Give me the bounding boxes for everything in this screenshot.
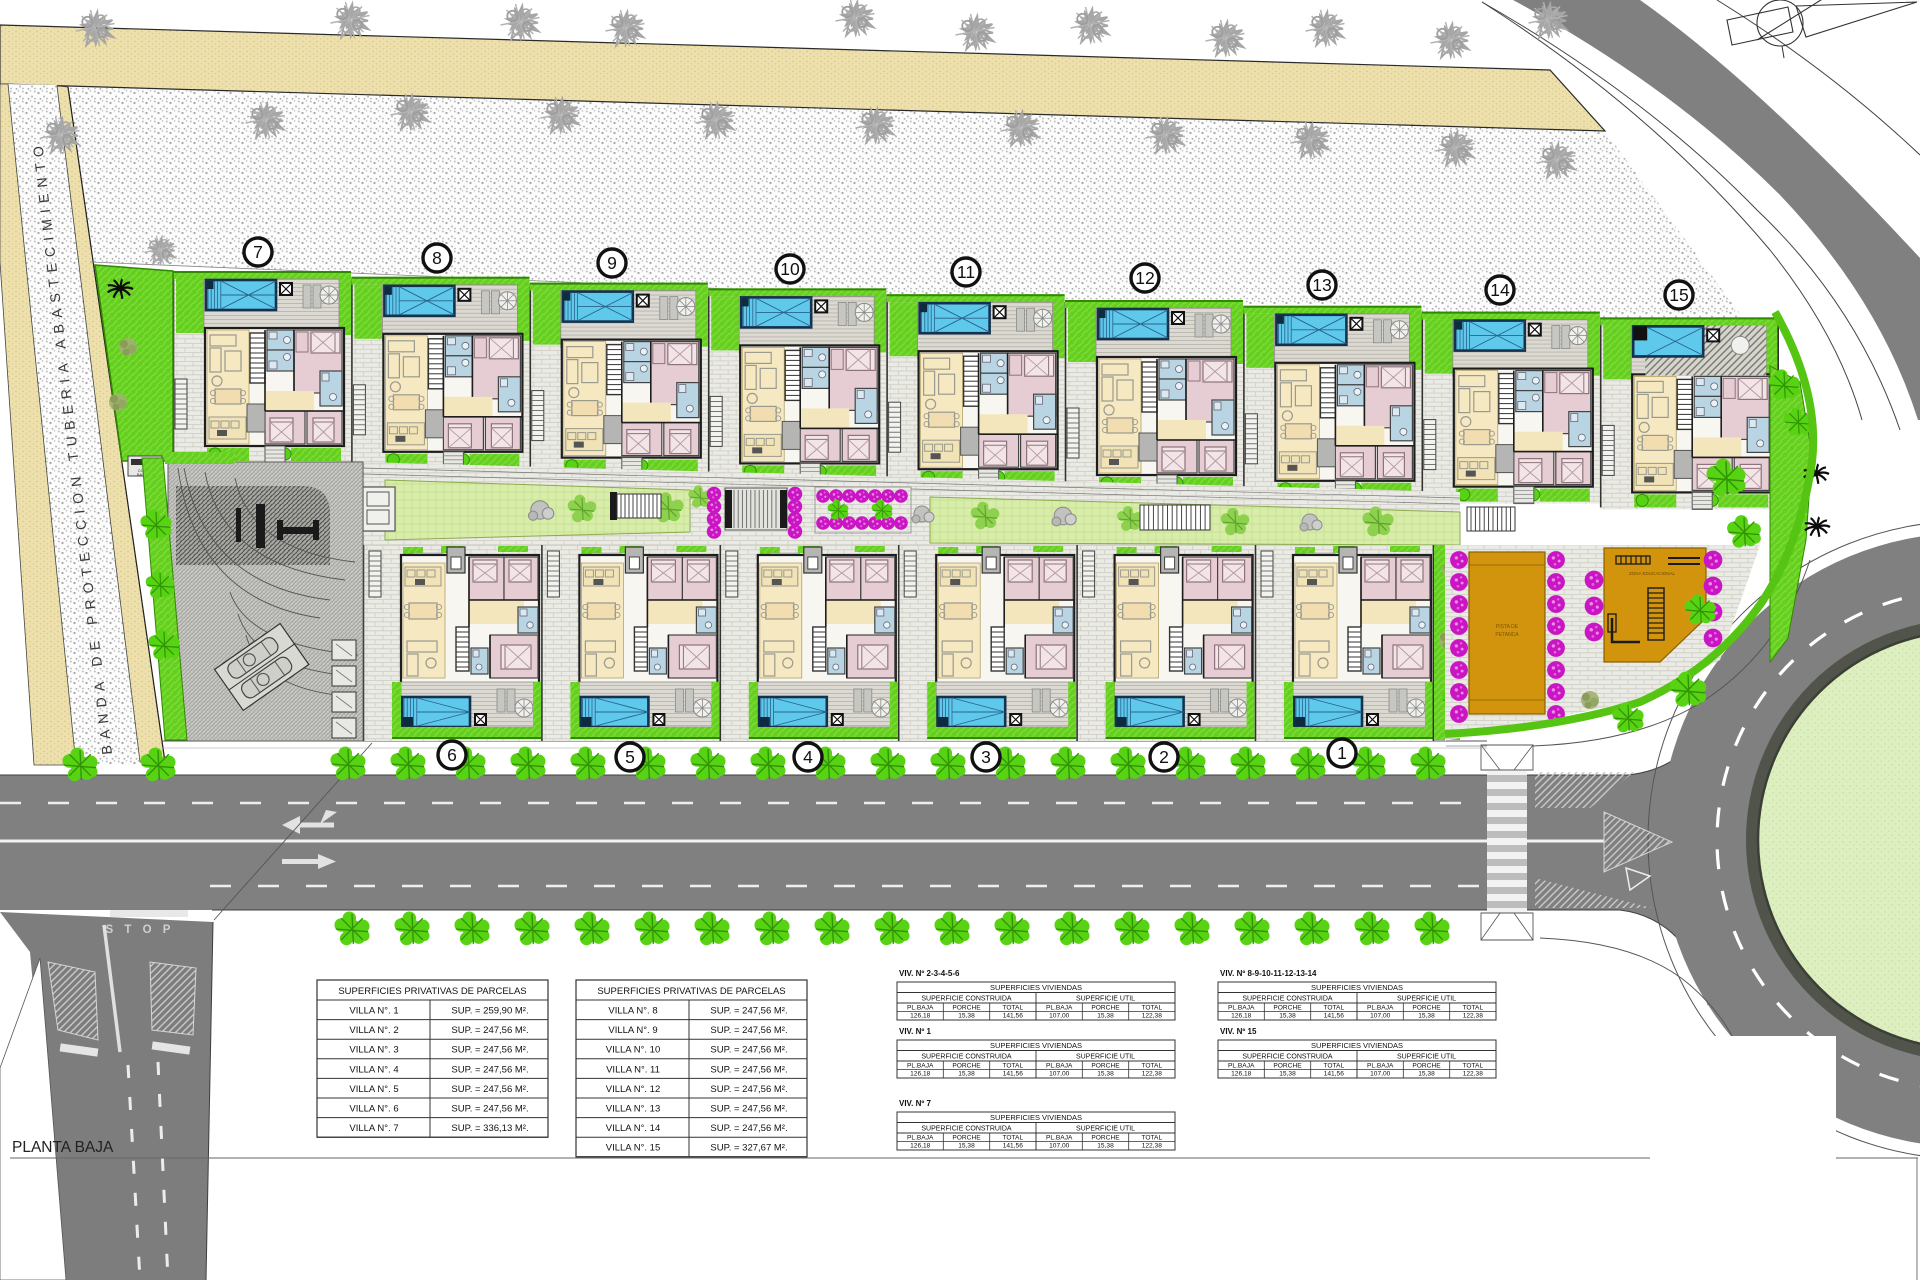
svg-text:VILLA N°. 5: VILLA N°. 5: [349, 1084, 398, 1095]
svg-text:126,18: 126,18: [910, 1143, 931, 1150]
svg-text:15,38: 15,38: [1279, 1013, 1296, 1020]
svg-text:9: 9: [607, 253, 617, 273]
svg-text:SUP. = 247,56 M².: SUP. = 247,56 M².: [710, 1045, 787, 1056]
svg-text:4: 4: [803, 747, 813, 767]
svg-text:VILLA N°. 8: VILLA N°. 8: [608, 1006, 657, 1017]
svg-text:TOTAL: TOTAL: [1002, 1063, 1023, 1070]
svg-text:VIV. Nº 2-3-4-5-6: VIV. Nº 2-3-4-5-6: [899, 969, 960, 978]
svg-text:107,00: 107,00: [1370, 1013, 1391, 1020]
svg-text:141,56: 141,56: [1003, 1071, 1024, 1078]
svg-text:15,38: 15,38: [1097, 1071, 1114, 1078]
svg-text:SUP. = 247,56 M².: SUP. = 247,56 M².: [451, 1064, 528, 1075]
svg-text:VILLA N°. 1: VILLA N°. 1: [349, 1006, 398, 1017]
svg-text:PL.BAJA: PL.BAJA: [1228, 1063, 1255, 1070]
svg-text:SUPERFICIE UTIL: SUPERFICIE UTIL: [1076, 1126, 1135, 1133]
svg-text:VIV. Nº 1: VIV. Nº 1: [899, 1027, 932, 1036]
svg-text:VILLA N°. 15: VILLA N°. 15: [606, 1143, 661, 1154]
svg-text:SUPERFICIES PRIVATIVAS DE PARC: SUPERFICIES PRIVATIVAS DE PARCELAS: [338, 986, 526, 997]
svg-text:SUPERFICIES VIVIENDAS: SUPERFICIES VIVIENDAS: [990, 983, 1082, 992]
svg-text:TOTAL: TOTAL: [1141, 1063, 1162, 1070]
svg-text:122,38: 122,38: [1463, 1013, 1484, 1020]
svg-text:VILLA N°. 14: VILLA N°. 14: [606, 1123, 661, 1134]
svg-text:VILLA N°. 3: VILLA N°. 3: [349, 1045, 398, 1056]
svg-text:SUP. = 336,13 M².: SUP. = 336,13 M².: [451, 1123, 528, 1134]
svg-text:SUPERFICIES VIVIENDAS: SUPERFICIES VIVIENDAS: [1311, 983, 1403, 992]
svg-text:15,38: 15,38: [958, 1143, 975, 1150]
svg-text:15,38: 15,38: [1097, 1143, 1114, 1150]
svg-text:141,56: 141,56: [1324, 1013, 1345, 1020]
svg-text:PORCHE: PORCHE: [952, 1063, 981, 1070]
svg-text:SUPERFICIES PRIVATIVAS DE PARC: SUPERFICIES PRIVATIVAS DE PARCELAS: [597, 986, 785, 997]
svg-text:15,38: 15,38: [958, 1071, 975, 1078]
svg-text:PL.BAJA: PL.BAJA: [1046, 1005, 1073, 1012]
svg-text:PL.BAJA: PL.BAJA: [1367, 1005, 1394, 1012]
svg-text:SUPERFICIE CONSTRUIDA: SUPERFICIE CONSTRUIDA: [921, 1126, 1012, 1133]
svg-text:PISTA DE: PISTA DE: [1496, 624, 1519, 630]
svg-text:VILLA N°. 12: VILLA N°. 12: [606, 1084, 661, 1095]
svg-text:PL.BAJA: PL.BAJA: [1046, 1135, 1073, 1142]
svg-text:SUP. = 247,56 M².: SUP. = 247,56 M².: [451, 1025, 528, 1036]
svg-text:SUP. = 247,56 M².: SUP. = 247,56 M².: [710, 1025, 787, 1036]
svg-text:TOTAL: TOTAL: [1002, 1005, 1023, 1012]
svg-text:PL.BAJA: PL.BAJA: [907, 1063, 934, 1070]
svg-text:SUPERFICIE UTIL: SUPERFICIE UTIL: [1397, 1054, 1456, 1061]
svg-text:15,38: 15,38: [958, 1013, 975, 1020]
svg-text:3: 3: [981, 747, 991, 767]
svg-text:PL.BAJA: PL.BAJA: [1228, 1005, 1255, 1012]
svg-text:SUPERFICIE UTIL: SUPERFICIE UTIL: [1076, 1054, 1135, 1061]
svg-text:PL.BAJA: PL.BAJA: [907, 1005, 934, 1012]
svg-text:SUP. = 247,56 M².: SUP. = 247,56 M².: [710, 1084, 787, 1095]
svg-text:15,38: 15,38: [1097, 1013, 1114, 1020]
svg-text:VIV. Nº 7: VIV. Nº 7: [899, 1099, 932, 1108]
svg-text:141,56: 141,56: [1324, 1071, 1345, 1078]
svg-text:S T O P: S T O P: [106, 924, 175, 936]
svg-text:TOTAL: TOTAL: [1323, 1005, 1344, 1012]
svg-text:PORCHE: PORCHE: [952, 1135, 981, 1142]
svg-text:SUPERFICIE UTIL: SUPERFICIE UTIL: [1397, 996, 1456, 1003]
svg-text:11: 11: [957, 262, 975, 282]
svg-text:SUP. = 247,56 M².: SUP. = 247,56 M².: [710, 1006, 787, 1017]
svg-text:TOTAL: TOTAL: [1141, 1005, 1162, 1012]
svg-text:PORCHE: PORCHE: [1091, 1005, 1120, 1012]
svg-text:2: 2: [1159, 747, 1169, 767]
svg-text:15,38: 15,38: [1418, 1071, 1435, 1078]
svg-text:SUPERFICIE CONSTRUIDA: SUPERFICIE CONSTRUIDA: [921, 996, 1012, 1003]
svg-text:126,18: 126,18: [1231, 1071, 1252, 1078]
svg-text:VILLA N°. 11: VILLA N°. 11: [606, 1064, 660, 1075]
svg-text:PORCHE: PORCHE: [1091, 1135, 1120, 1142]
svg-text:107,00: 107,00: [1049, 1143, 1070, 1150]
svg-text:10: 10: [780, 259, 800, 279]
svg-text:PORCHE: PORCHE: [1091, 1063, 1120, 1070]
svg-text:SUP. = 247,56 M².: SUP. = 247,56 M².: [710, 1104, 787, 1115]
svg-text:107,00: 107,00: [1370, 1071, 1391, 1078]
svg-text:126,18: 126,18: [910, 1071, 931, 1078]
svg-text:PORCHE: PORCHE: [1412, 1063, 1441, 1070]
svg-text:15: 15: [1669, 285, 1688, 305]
svg-text:SUP. = 259,90 M².: SUP. = 259,90 M².: [451, 1006, 528, 1017]
svg-text:VILLA N°. 4: VILLA N°. 4: [349, 1064, 398, 1075]
svg-text:12: 12: [1135, 268, 1154, 288]
svg-text:SUPERFICIE CONSTRUIDA: SUPERFICIE CONSTRUIDA: [1242, 1054, 1333, 1061]
svg-text:126,18: 126,18: [1231, 1013, 1252, 1020]
svg-text:SUP. = 247,56 M².: SUP. = 247,56 M².: [451, 1084, 528, 1095]
svg-text:122,38: 122,38: [1142, 1013, 1163, 1020]
svg-text:TOTAL: TOTAL: [1141, 1135, 1162, 1142]
svg-text:VILLA N°. 7: VILLA N°. 7: [349, 1123, 398, 1134]
svg-text:VILLA N°. 13: VILLA N°. 13: [606, 1104, 661, 1115]
svg-text:SUP. = 247,56 M².: SUP. = 247,56 M².: [710, 1064, 787, 1075]
svg-text:PETANCA: PETANCA: [1495, 632, 1519, 638]
svg-text:VILLA N°. 6: VILLA N°. 6: [349, 1104, 398, 1115]
svg-text:126,18: 126,18: [910, 1013, 931, 1020]
svg-text:122,38: 122,38: [1463, 1071, 1484, 1078]
svg-text:107,00: 107,00: [1049, 1071, 1070, 1078]
svg-text:SUP. = 327,67 M².: SUP. = 327,67 M².: [710, 1143, 787, 1154]
svg-text:13: 13: [1312, 275, 1331, 295]
svg-text:8: 8: [432, 248, 442, 268]
svg-text:107,00: 107,00: [1049, 1013, 1070, 1020]
svg-text:1: 1: [1337, 743, 1347, 763]
svg-text:PORCHE: PORCHE: [952, 1005, 981, 1012]
svg-text:VILLA N°. 9: VILLA N°. 9: [608, 1025, 657, 1036]
svg-text:PORCHE: PORCHE: [1412, 1005, 1441, 1012]
svg-text:TOTAL: TOTAL: [1323, 1063, 1344, 1070]
svg-text:14: 14: [1490, 280, 1510, 300]
svg-text:VILLA N°. 2: VILLA N°. 2: [349, 1025, 398, 1036]
svg-text:SUPERFICIES VIVIENDAS: SUPERFICIES VIVIENDAS: [1311, 1041, 1403, 1050]
svg-text:VIV. Nº 8-9-10-11-12-13-14: VIV. Nº 8-9-10-11-12-13-14: [1220, 969, 1317, 978]
svg-text:SUPERFICIES VIVIENDAS: SUPERFICIES VIVIENDAS: [990, 1041, 1082, 1050]
svg-text:5: 5: [625, 747, 635, 767]
svg-text:PORCHE: PORCHE: [1273, 1063, 1302, 1070]
svg-text:PORCHE: PORCHE: [1273, 1005, 1302, 1012]
svg-text:6: 6: [447, 745, 457, 765]
svg-text:122,38: 122,38: [1142, 1071, 1163, 1078]
svg-text:PL.BAJA: PL.BAJA: [1046, 1063, 1073, 1070]
svg-text:SUPERFICIE UTIL: SUPERFICIE UTIL: [1076, 996, 1135, 1003]
svg-text:SUP. = 247,56 M².: SUP. = 247,56 M².: [451, 1045, 528, 1056]
svg-text:VILLA N°. 10: VILLA N°. 10: [606, 1045, 661, 1056]
svg-text:VIV. Nº 15: VIV. Nº 15: [1220, 1027, 1257, 1036]
svg-text:PLANTA BAJA: PLANTA BAJA: [12, 1139, 114, 1156]
svg-text:SUPERFICIES VIVIENDAS: SUPERFICIES VIVIENDAS: [990, 1113, 1082, 1122]
svg-text:SUPERFICIE CONSTRUIDA: SUPERFICIE CONSTRUIDA: [921, 1054, 1012, 1061]
svg-text:TOTAL: TOTAL: [1462, 1005, 1483, 1012]
svg-text:TOTAL: TOTAL: [1002, 1135, 1023, 1142]
svg-text:7: 7: [253, 242, 263, 262]
svg-text:141,56: 141,56: [1003, 1143, 1024, 1150]
svg-text:PL.BAJA: PL.BAJA: [1367, 1063, 1394, 1070]
svg-text:15,38: 15,38: [1279, 1071, 1296, 1078]
svg-text:SUPERFICIE CONSTRUIDA: SUPERFICIE CONSTRUIDA: [1242, 996, 1333, 1003]
svg-text:TOTAL: TOTAL: [1462, 1063, 1483, 1070]
svg-text:15,38: 15,38: [1418, 1013, 1435, 1020]
svg-text:SUP. = 247,56 M².: SUP. = 247,56 M².: [710, 1123, 787, 1134]
svg-text:SUP. = 247,56 M².: SUP. = 247,56 M².: [451, 1104, 528, 1115]
svg-text:141,56: 141,56: [1003, 1013, 1024, 1020]
svg-text:ZONA EDUCACIONAL: ZONA EDUCACIONAL: [1629, 571, 1676, 576]
svg-text:122,38: 122,38: [1142, 1143, 1163, 1150]
svg-text:PL.BAJA: PL.BAJA: [907, 1135, 934, 1142]
